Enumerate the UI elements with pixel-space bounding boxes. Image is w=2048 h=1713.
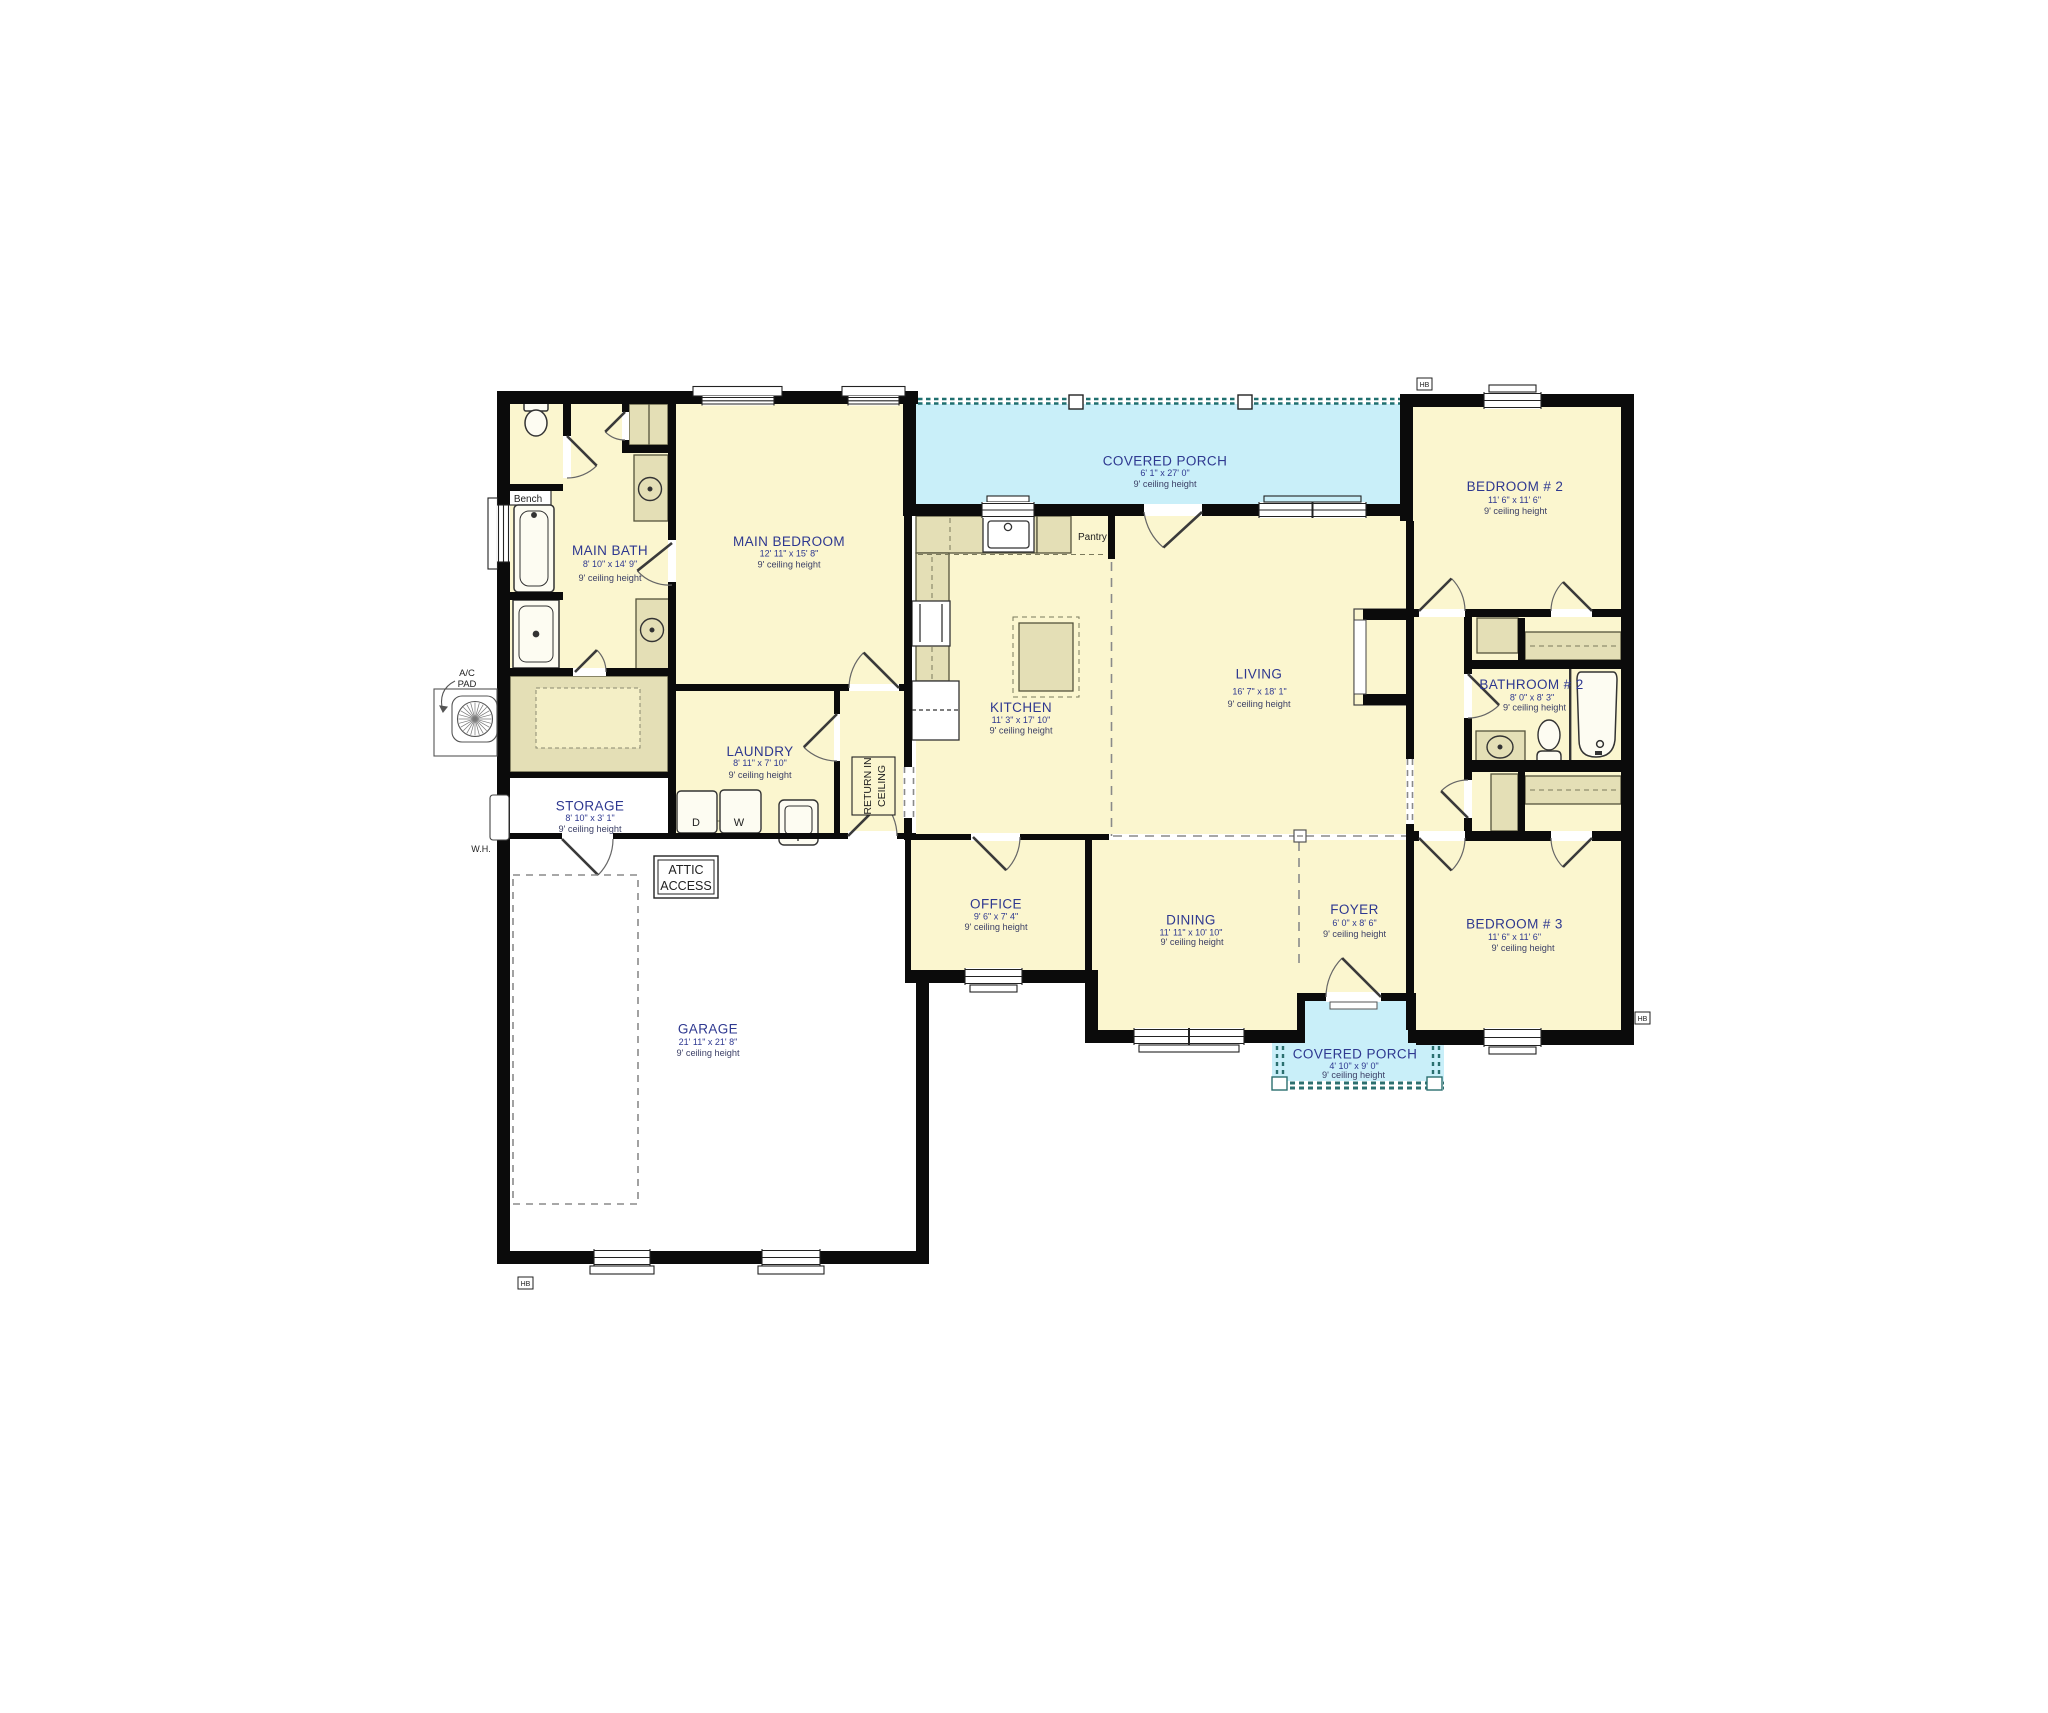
svg-text:9' ceiling height: 9' ceiling height — [1484, 506, 1547, 516]
svg-text:BEDROOM # 3: BEDROOM # 3 — [1466, 917, 1563, 932]
svg-text:DINING: DINING — [1166, 913, 1216, 928]
svg-text:9' ceiling height: 9' ceiling height — [1322, 1070, 1385, 1080]
svg-text:8' 11" x 7' 10": 8' 11" x 7' 10" — [733, 758, 787, 768]
svg-text:9' ceiling height: 9' ceiling height — [1503, 703, 1566, 713]
svg-text:Bench: Bench — [514, 494, 542, 505]
svg-text:FOYER: FOYER — [1330, 902, 1379, 917]
svg-text:MAIN BATH: MAIN BATH — [572, 543, 648, 558]
svg-text:8' 10" x 3' 1": 8' 10" x 3' 1" — [565, 813, 614, 823]
svg-text:9' ceiling height: 9' ceiling height — [558, 824, 621, 834]
svg-text:KITCHEN: KITCHEN — [990, 700, 1052, 715]
svg-text:COVERED PORCH: COVERED PORCH — [1103, 454, 1227, 469]
svg-text:9' ceiling height: 9' ceiling height — [728, 770, 791, 780]
svg-text:9' ceiling height: 9' ceiling height — [964, 922, 1027, 932]
svg-text:A/C: A/C — [459, 668, 475, 679]
svg-text:8' 0" x 8' 3": 8' 0" x 8' 3" — [1510, 693, 1554, 703]
svg-text:MAIN BEDROOM: MAIN BEDROOM — [733, 534, 845, 549]
svg-text:BATHROOM # 2: BATHROOM # 2 — [1479, 677, 1583, 692]
svg-text:11' 6" x 11' 6": 11' 6" x 11' 6" — [1488, 495, 1541, 505]
svg-text:21' 11" x 21' 8": 21' 11" x 21' 8" — [679, 1037, 738, 1047]
svg-text:8' 10" x 14' 9": 8' 10" x 14' 9" — [583, 559, 637, 569]
svg-text:11' 3" x 17' 10": 11' 3" x 17' 10" — [992, 715, 1051, 725]
svg-text:9' ceiling height: 9' ceiling height — [578, 573, 641, 583]
svg-text:OFFICE: OFFICE — [970, 897, 1022, 912]
svg-text:HB: HB — [1420, 382, 1430, 389]
svg-text:9' ceiling height: 9' ceiling height — [1323, 929, 1386, 939]
svg-text:ACCESS: ACCESS — [660, 879, 711, 893]
svg-text:9' 6" x 7' 4": 9' 6" x 7' 4" — [974, 912, 1018, 922]
svg-text:GARAGE: GARAGE — [678, 1022, 738, 1037]
svg-text:LAUNDRY: LAUNDRY — [726, 744, 793, 759]
svg-text:9' ceiling height: 9' ceiling height — [1227, 699, 1290, 709]
svg-text:9' ceiling height: 9' ceiling height — [989, 726, 1052, 736]
svg-text:CEILING: CEILING — [876, 765, 888, 807]
svg-text:LIVING: LIVING — [1236, 667, 1283, 682]
svg-text:9' ceiling height: 9' ceiling height — [1491, 943, 1554, 953]
svg-text:6' 1" x 27' 0": 6' 1" x 27' 0" — [1140, 468, 1189, 478]
svg-text:9' ceiling height: 9' ceiling height — [757, 560, 820, 570]
svg-text:Pantry: Pantry — [1078, 532, 1107, 543]
svg-text:W: W — [734, 817, 745, 829]
svg-text:RETURN IN: RETURN IN — [862, 757, 874, 814]
svg-text:11' 11" x 10' 10": 11' 11" x 10' 10" — [1159, 928, 1222, 938]
svg-text:STORAGE: STORAGE — [556, 799, 625, 814]
svg-text:PAD: PAD — [458, 679, 477, 690]
svg-text:9' ceiling height: 9' ceiling height — [676, 1048, 739, 1058]
svg-text:HB: HB — [521, 1281, 531, 1288]
svg-text:D: D — [692, 817, 700, 829]
svg-text:9' ceiling height: 9' ceiling height — [1133, 479, 1196, 489]
svg-text:HB: HB — [1638, 1016, 1648, 1023]
svg-text:12' 11" x 15' 8": 12' 11" x 15' 8" — [760, 549, 819, 559]
svg-text:COVERED PORCH: COVERED PORCH — [1293, 1047, 1417, 1062]
svg-text:ATTIC: ATTIC — [668, 863, 703, 877]
svg-text:11' 6" x 11' 6": 11' 6" x 11' 6" — [1488, 932, 1541, 942]
svg-text:BEDROOM # 2: BEDROOM # 2 — [1467, 479, 1564, 494]
svg-text:9' ceiling height: 9' ceiling height — [1160, 937, 1223, 947]
svg-text:16' 7" x 18' 1": 16' 7" x 18' 1" — [1232, 687, 1286, 697]
svg-text:6' 0" x 8' 6": 6' 0" x 8' 6" — [1332, 918, 1376, 928]
svg-text:W.H.: W.H. — [471, 844, 491, 854]
